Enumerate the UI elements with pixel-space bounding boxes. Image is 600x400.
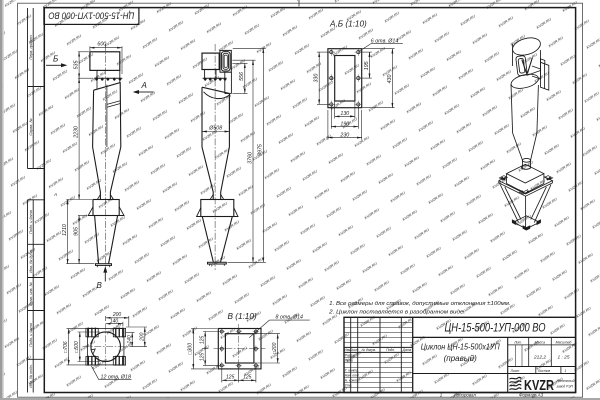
svg-text:Подп.: Подп. [386,348,395,352]
svg-text:12 отв. Ø18: 12 отв. Ø18 [101,374,131,380]
svg-text:Котельный: Котельный [557,379,575,383]
svg-text:556: 556 [239,72,245,81]
svg-text:125: 125 [200,336,206,345]
svg-text:Инв. № дубл.: Инв. № дубл. [29,249,33,272]
svg-text:Подп. и дата: Подп. и дата [29,210,33,234]
svg-text:Разраб.: Разраб. [345,354,357,358]
svg-text:Нач. отд.: Нач. отд. [345,374,360,378]
svg-text:1 : 25: 1 : 25 [557,354,569,360]
svg-text:195: 195 [364,61,370,70]
svg-text:В: В [97,281,103,290]
svg-text:6 отв. Ø14: 6 отв. Ø14 [371,38,399,44]
svg-text:Н. контр.: Н. контр. [345,379,360,383]
svg-text:Утв.: Утв. [345,384,353,388]
svg-text:Лист: Лист [510,369,520,373]
svg-text:140: 140 [110,319,119,325]
svg-text:8 отв. Ø14: 8 отв. Ø14 [276,315,304,321]
svg-text:А: А [141,81,147,90]
svg-text:2. Циклон поставляется в разоб: 2. Циклон поставляется в разобранном вид… [328,310,465,316]
svg-text:В (1:10): В (1:10) [228,312,257,321]
svg-text:Лит.: Лит. [513,340,522,344]
svg-text:Формат А3: Формат А3 [519,393,544,398]
svg-text:Листов: Листов [537,369,551,373]
svg-text:(правый): (правый) [444,354,477,363]
svg-text:□200: □200 [272,342,278,354]
svg-text:2230: 2230 [74,126,80,139]
svg-text:190: 190 [340,121,349,127]
svg-text:140: 140 [127,335,133,344]
svg-text:ЦН-15-500-1УП-000 ВО: ЦН-15-500-1УП-000 ВО [445,321,546,335]
svg-text:Взам. инв. №: Взам. инв. № [29,282,33,305]
svg-text:Масса: Масса [535,340,545,344]
svg-text:430: 430 [387,75,393,84]
svg-text:200: 200 [139,332,145,342]
svg-text:212,2: 212,2 [533,354,546,360]
svg-text:□706: □706 [63,341,69,353]
svg-text:А,Б (1:10): А,Б (1:10) [329,20,367,29]
svg-text:600: 600 [97,41,106,47]
svg-text:Инв. № подл.: Инв. № подл. [29,364,33,388]
svg-text:535: 535 [74,61,80,70]
svg-text:Дата: Дата [402,348,412,352]
svg-text:230: 230 [339,132,349,138]
svg-text:130: 130 [340,111,349,117]
svg-text:А: А [53,192,57,197]
svg-text:□300: □300 [188,343,194,355]
svg-text:ЦН-15-500-1УП-000 ВО: ЦН-15-500-1УП-000 ВО [48,10,134,20]
svg-text:Масштаб: Масштаб [556,340,572,344]
svg-text:Циклон ЦН-15-500х1УП: Циклон ЦН-15-500х1УП [421,343,500,352]
svg-text:905: 905 [74,227,80,236]
svg-text:Справ. №: Справ. № [29,118,33,135]
svg-text:125: 125 [226,375,235,381]
svg-text:3975: 3975 [258,144,264,156]
svg-text:Лист: Лист [349,348,359,352]
svg-text:125: 125 [243,375,252,381]
svg-text:200: 200 [112,312,122,318]
svg-text:Копировал: Копировал [454,393,476,398]
svg-text:№ докум.: № докум. [362,348,377,352]
svg-text:Подп. и дата: Подп. и дата [29,323,33,347]
svg-text:завод РЭП: завод РЭП [556,385,574,389]
svg-text:1. Все размеры для справок, до: 1. Все размеры для справок, допустимые о… [329,301,511,307]
svg-text:1: 1 [565,369,567,373]
svg-text:Т. контр.: Т. контр. [345,369,359,373]
svg-text:Ø508: Ø508 [208,126,222,132]
svg-text:Б: Б [53,55,58,64]
svg-text:3760: 3760 [247,152,253,164]
svg-text:Пров.: Пров. [345,359,354,363]
svg-text:□500: □500 [74,341,80,353]
svg-text:1210: 1210 [62,224,68,236]
svg-text:Перв. примен.: Перв. примен. [29,34,33,59]
svg-text:330: 330 [314,74,320,83]
svg-text:125: 125 [200,353,206,362]
